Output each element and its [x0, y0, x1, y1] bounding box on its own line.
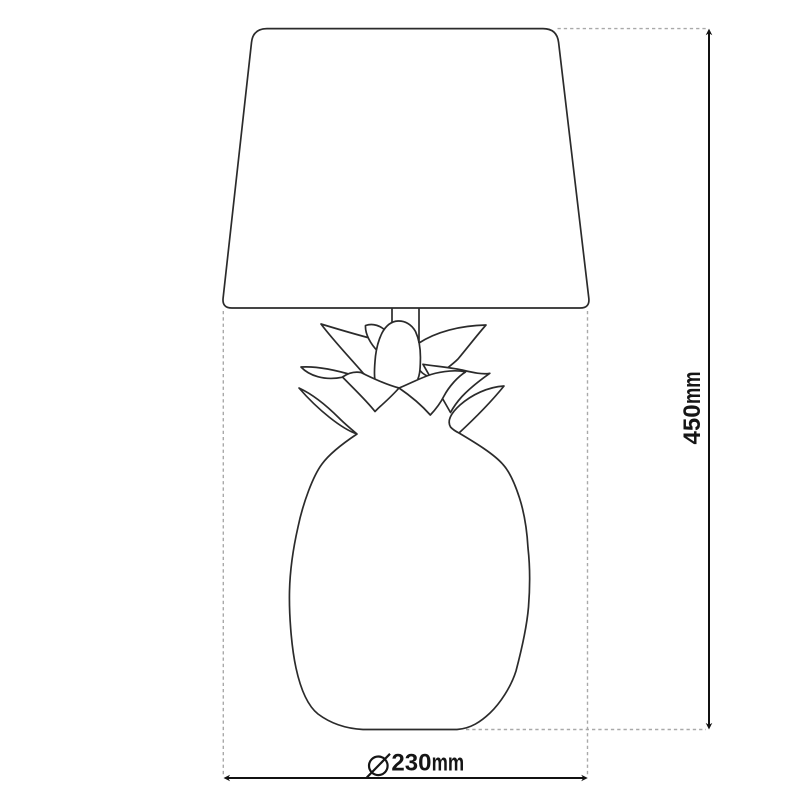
svg-text:mm: mm	[679, 372, 706, 405]
svg-text:mm: mm	[432, 750, 465, 777]
svg-text:230: 230	[391, 750, 431, 777]
svg-text:450: 450	[679, 404, 706, 444]
